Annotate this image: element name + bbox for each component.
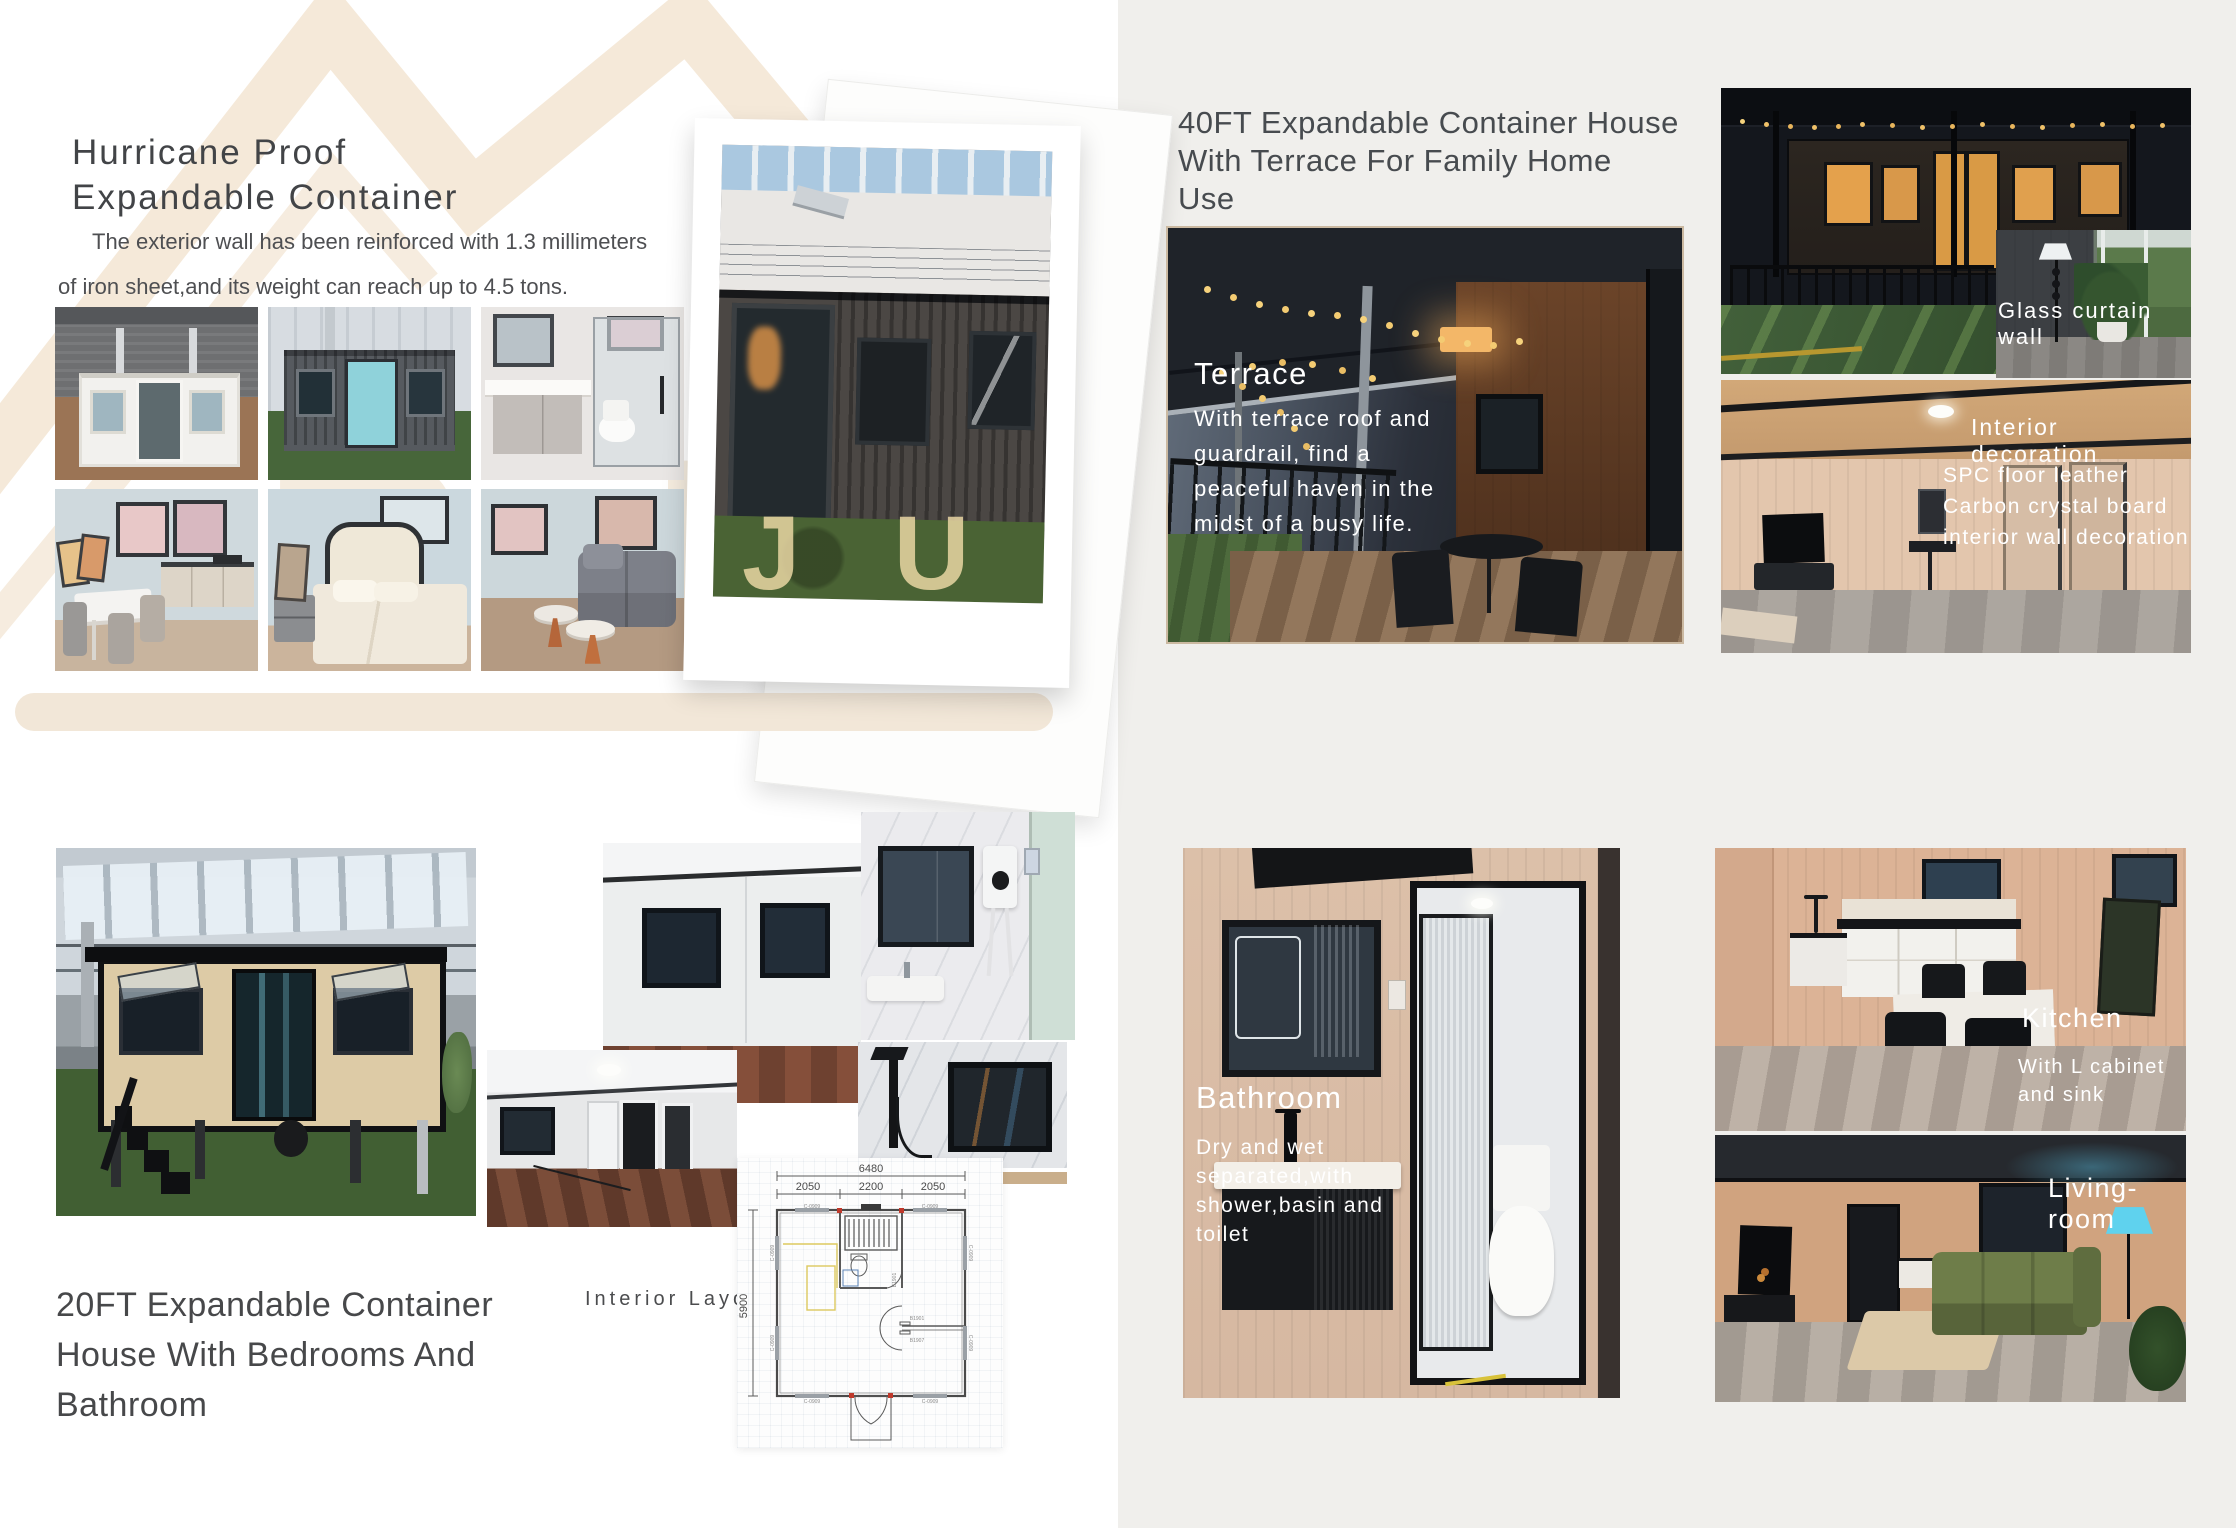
- photo-bedroom-interior: [268, 489, 471, 671]
- dark-wall-strip: [1598, 848, 1620, 1398]
- tv-screen: [1762, 513, 1825, 564]
- lit-window: [1824, 162, 1872, 225]
- shower-head: [870, 1047, 909, 1060]
- window: [116, 502, 169, 557]
- photo-terrace-night: Terrace With terrace roof and guardrail,…: [1166, 226, 1684, 644]
- deck-planks: [1230, 551, 1682, 642]
- left-description-line2: of iron sheet,and its weight can reach u…: [58, 274, 568, 300]
- terrace-text-line: midst of a busy life.: [1194, 511, 1414, 537]
- bathroom-text-line: Dry and wet: [1196, 1136, 1325, 1160]
- porch-post: [1773, 111, 1779, 277]
- photo-shower-interior: [858, 1042, 1067, 1168]
- sink-faucet-spout: [1804, 895, 1828, 899]
- container-window: [90, 390, 126, 434]
- heater-dial: [992, 871, 1009, 889]
- painting: [77, 533, 111, 582]
- control-box: [1024, 848, 1041, 875]
- product2-title-line2: House With Bedrooms And: [56, 1330, 476, 1380]
- black-countertop: [1837, 919, 2021, 929]
- right-title-line1: 40FT Expandable Container House: [1178, 104, 1679, 142]
- bathroom-text-line: shower,basin and: [1196, 1194, 1383, 1218]
- left-description-line1: The exterior wall has been reinforced wi…: [92, 229, 647, 255]
- porch-post: [1951, 111, 1957, 277]
- photo-living-room: Living-room: [1715, 1135, 2186, 1402]
- container-door: [136, 380, 183, 462]
- mirror-light-outline: [1235, 936, 1300, 1039]
- floor-planks: [487, 1169, 737, 1227]
- plan-dim-total-width: 6480: [859, 1163, 883, 1175]
- glass-door: [232, 969, 316, 1121]
- skylight-band: [63, 852, 469, 940]
- plan-window-code: C-0909: [922, 1399, 939, 1405]
- cabinet-ribbed-door: [1314, 925, 1362, 1057]
- window: [948, 1062, 1052, 1152]
- right-title-line2: With Terrace For Family Home: [1178, 142, 1612, 180]
- glass-panel: [1029, 812, 1075, 1040]
- vent-pipe: [116, 328, 124, 376]
- interior-text-line: interior wall decoration: [1943, 526, 2189, 550]
- vanity-cabinet: [493, 395, 582, 454]
- photo-kitchen: Kitchen With L cabinet and sink: [1715, 848, 2186, 1131]
- nightstand: [274, 595, 315, 642]
- lit-window: [1881, 165, 1920, 222]
- floor-plan-sheet: 6480 2050 2200 2050 5900 C-0909 C-0909 C…: [737, 1158, 1003, 1448]
- plant: [2129, 1306, 2186, 1391]
- lit-window: [2078, 162, 2122, 217]
- window: [595, 496, 658, 550]
- sink-faucet: [1814, 896, 1818, 933]
- photo-bathroom-interior: [481, 307, 684, 480]
- basin: [867, 976, 944, 1001]
- wheel: [274, 1120, 308, 1157]
- plan-dim-right: 2050: [921, 1181, 945, 1193]
- string-lights: [1204, 286, 1211, 293]
- toilet-tank: [1493, 1145, 1550, 1211]
- photo-dining-interior: [55, 489, 258, 671]
- interior-text-line: Carbon crystal board: [1943, 495, 2168, 519]
- plan-dim-depth: 5900: [738, 1294, 750, 1318]
- interior-text-line: SPC floor leather: [1943, 464, 2128, 488]
- picture-frame: [274, 543, 310, 602]
- plan-window-code: C-0909: [804, 1204, 821, 1210]
- sofa: [1932, 1252, 2087, 1335]
- pillow: [374, 582, 419, 602]
- pillow: [333, 580, 378, 602]
- power-lines: [720, 244, 1051, 287]
- photo-glass-curtain-wall: Glass curtain wall: [1996, 230, 2191, 378]
- chair: [1983, 961, 2025, 995]
- mirror-cabinet: [493, 314, 554, 367]
- container-window: [189, 390, 225, 434]
- letter-watermark-front: J U: [742, 494, 1001, 614]
- bathroom-text-line: separated,with: [1196, 1165, 1354, 1189]
- shower-glass: [593, 317, 680, 466]
- mirror-cabinet: [878, 846, 974, 947]
- table-leg: [92, 620, 96, 660]
- floor-plan-drawing: 6480 2050 2200 2050 5900 C-0909 C-0909 C…: [737, 1158, 1003, 1448]
- window: [760, 903, 829, 978]
- chair: [1392, 549, 1454, 627]
- photo-livingroom-interior: [481, 489, 684, 671]
- ceiling-light: [1471, 898, 1493, 909]
- skylight-strip: [721, 145, 1052, 197]
- plan-window-code: C-0909: [967, 1245, 973, 1262]
- plan-window-code: C-0909: [967, 1335, 973, 1352]
- chair: [1514, 557, 1582, 637]
- sofa-cushion: [583, 544, 624, 569]
- wall-lamp: [1440, 327, 1491, 352]
- kitchen-text-line: With L cabinet: [2018, 1056, 2165, 1079]
- light-switch: [1388, 980, 1405, 1010]
- support-leg: [195, 1120, 206, 1179]
- faucet: [904, 962, 910, 978]
- toilet-bowl: [1489, 1206, 1555, 1316]
- brochure-page: B U Hurricane Proof Expandable Container…: [0, 0, 2236, 1528]
- photo-corridor-interior: [487, 1050, 737, 1227]
- left-title-line2: Expandable Container: [72, 175, 458, 220]
- photo-gray-container-exterior: [268, 307, 471, 480]
- container-window: [406, 369, 444, 417]
- roof-truss: [56, 944, 476, 947]
- plan-door-code: B1907: [910, 1338, 925, 1344]
- plan-window-code: C-0909: [804, 1399, 821, 1405]
- chair: [140, 595, 164, 642]
- ribbed-glass-panel: [1419, 914, 1493, 1351]
- terrace-heading: Terrace: [1194, 356, 1308, 392]
- photo-bathroom-water-heater: [861, 812, 1075, 1040]
- wall-corner: [745, 877, 747, 1043]
- product2-title-line3: Bathroom: [56, 1380, 207, 1430]
- painting: [2097, 898, 2161, 1017]
- warm-light: [747, 326, 781, 390]
- container-roof: [85, 947, 446, 962]
- kitchen-heading: Kitchen: [2022, 1003, 2123, 1034]
- glass-door: [728, 303, 835, 523]
- l-counter: [1790, 933, 1847, 986]
- plan-window-code: C-0909: [922, 1204, 939, 1210]
- support-leg: [417, 1120, 428, 1194]
- toilet: [603, 400, 629, 421]
- window: [642, 908, 722, 988]
- plan-window-code: C-0909: [770, 1335, 776, 1352]
- tv-screen: [1737, 1225, 1791, 1296]
- container-window: [855, 337, 931, 446]
- container-window: [967, 331, 1036, 431]
- left-title-line1: Hurricane Proof: [72, 130, 347, 175]
- plan-door-code: B1901: [892, 1273, 898, 1288]
- bathroom-text-line: toilet: [1196, 1223, 1249, 1247]
- spotlight: [1928, 405, 1954, 418]
- kitchen-cabinets: [161, 562, 254, 607]
- glass-curtain-wall-label: Glass curtain wall: [1998, 298, 2191, 350]
- lit-glass-door: [1933, 151, 2000, 271]
- plant: [442, 1032, 471, 1113]
- window: [491, 504, 548, 556]
- floor-lamp-stem: [2127, 1234, 2130, 1319]
- wall-window: [1476, 394, 1543, 474]
- kitchen-text-line: and sink: [2018, 1084, 2105, 1107]
- chair: [1922, 964, 1964, 998]
- chair: [63, 602, 87, 657]
- counter-appliance: [213, 555, 241, 564]
- shower-handle: [660, 376, 664, 414]
- terrace-text-line: peaceful haven in the: [1194, 476, 1435, 502]
- stairs: [161, 1172, 190, 1194]
- lit-window: [2012, 165, 2056, 222]
- photo-interior-decoration: Interior decoration SPC floor leather Ca…: [1721, 380, 2191, 653]
- terrace-text-line: With terrace roof and: [1194, 406, 1431, 432]
- living-room-label: Living-room: [2048, 1173, 2186, 1235]
- support-leg: [350, 1120, 361, 1183]
- chair: [108, 613, 134, 664]
- console-leg: [1928, 552, 1932, 590]
- sofa-armrest: [2073, 1247, 2101, 1327]
- terrace-text-line: guardrail, find a: [1194, 441, 1371, 467]
- warehouse-column: [81, 922, 94, 1047]
- stairs: [144, 1150, 169, 1172]
- plan-window-code: C-0909: [770, 1245, 776, 1262]
- product2-title-line1: 20FT Expandable Container: [56, 1280, 493, 1330]
- divider-pill: [15, 693, 1053, 731]
- photo-white-container-exterior: [55, 307, 258, 480]
- plan-dim-left: 2050: [796, 1181, 820, 1193]
- vent-pipe: [189, 328, 197, 376]
- bathroom-heading: Bathroom: [1196, 1080, 1342, 1116]
- table-leg: [1487, 555, 1491, 613]
- glass-door: [345, 359, 398, 448]
- container-window: [296, 369, 334, 417]
- window: [173, 500, 228, 557]
- photo-bathroom-vanity: Bathroom Dry and wet separated,with show…: [1183, 848, 1620, 1398]
- art-frame: [1918, 489, 1946, 534]
- tv-cabinet: [1754, 563, 1834, 590]
- stairs: [127, 1128, 148, 1150]
- window: [500, 1107, 556, 1156]
- plan-dim-center: 2200: [859, 1181, 883, 1193]
- tan-accent-strip: [1003, 1172, 1067, 1184]
- hallway-opening: [1847, 1204, 1900, 1322]
- plan-door-code: B1901: [910, 1316, 925, 1322]
- right-title-line3: Use: [1178, 180, 1235, 218]
- interior-decoration-heading: Interior decoration: [1971, 414, 2191, 468]
- photo-container-on-trailer: [56, 848, 476, 1216]
